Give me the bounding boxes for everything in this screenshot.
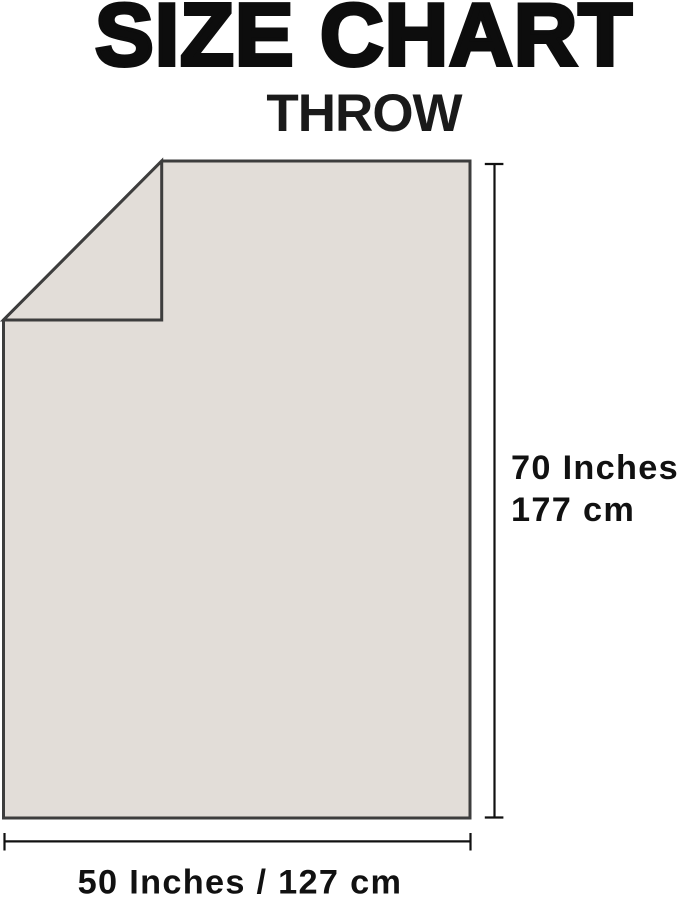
svg-text:177 cm: 177 cm	[511, 491, 635, 529]
svg-text:50 Inches / 127 cm: 50 Inches / 127 cm	[78, 864, 403, 897]
svg-text:THROW: THROW	[266, 84, 462, 143]
svg-text:70 Inches: 70 Inches	[511, 449, 679, 487]
svg-text:SIZE CHART: SIZE CHART	[95, 0, 633, 84]
